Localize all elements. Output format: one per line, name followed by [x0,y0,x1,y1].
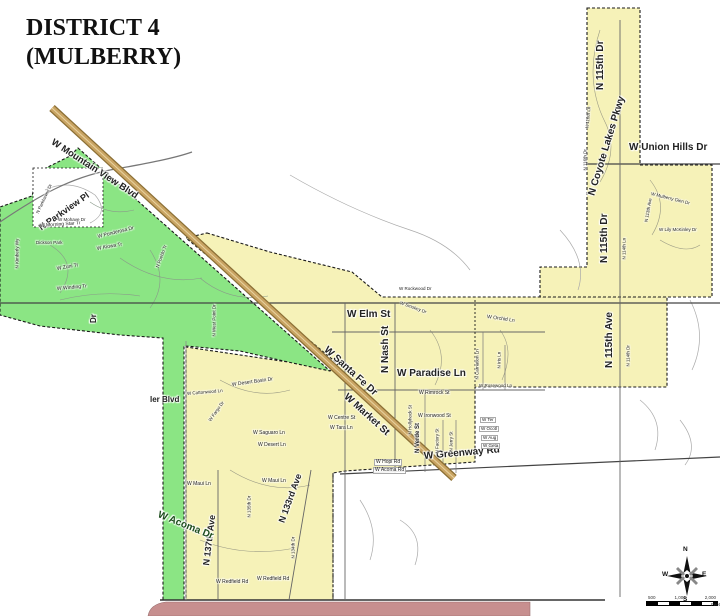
street-label: N 134th Dr [292,536,297,558]
adjacent-district-pink [148,602,530,616]
street-label: W Redfield Rd [257,577,289,582]
street-label: W Acoma Rd [373,467,406,474]
street-label: N Nash St [381,326,391,373]
street-label: W Elm St [347,310,390,320]
compass-w: W [662,571,668,578]
street-label: W Rosewood Ln [479,384,512,389]
street-label: N 114th Ln [623,237,628,259]
street-label: N Verde St [415,423,421,453]
street-label: N Hollyhock St [409,404,414,434]
compass-letters: N E S W [650,540,716,596]
map-canvas [0,0,720,616]
street-label: ler Blvd [150,396,179,404]
scale-unit: Feet [711,602,720,607]
street-label: N Carnation Ln [476,349,481,379]
street-label: W Ironwood St [418,414,451,419]
map-title-line1: DISTRICT 4 [26,14,181,43]
street-label: Dr [90,314,98,323]
scale-tick: 2,000 [705,595,716,600]
street-label: N 115th Dr [596,41,606,90]
street-label: N 116th Dr [584,149,589,170]
street-label: W Hopi Rd [374,459,402,466]
scale-tick: 500 [648,595,656,600]
street-label: W Geta [481,443,500,450]
map-title-line2: (MULBERRY) [26,43,181,72]
street-label: W Rockwood Dr [399,287,432,292]
street-label: N 135th Dr [248,495,253,517]
street-label: N 114th Dr [627,345,632,366]
street-label: W Union Hills Dr [629,143,707,153]
scale-bar-graphic [646,601,718,606]
scale-bar: 500 1,000 2,000 Feet [646,595,718,606]
street-label: W Maui Ln [187,482,211,487]
district-map: DISTRICT 4 (MULBERRY) W Mountain View Bl… [0,0,720,616]
map-title: DISTRICT 4 (MULBERRY) [26,14,181,72]
street-label: W Ter [480,417,496,424]
street-label: W Ocotl [479,426,499,433]
street-label: W Mohave Dr [58,218,86,223]
street-label: N Jerry St [450,431,455,451]
street-label: N 115th Dr [600,214,610,263]
scale-ticks: 500 1,000 2,000 [646,595,718,600]
street-label: N Factory St [436,428,441,453]
street-label: W Redfield Rd [216,580,248,585]
street-label: W Saguaro Ln [253,431,285,436]
street-label: W Tara Ln [330,426,353,431]
street-label: N West Point Dr [213,304,218,336]
street-label: W Rimrock St [419,391,450,396]
compass-e: E [702,571,706,578]
street-label: N 115th Ave [605,312,615,368]
scale-tick: 1,000 [674,595,685,600]
street-label: W Maui Ln [262,479,286,484]
street-label: N Iris Ln [498,351,503,368]
compass-n: N [683,546,688,553]
street-label: W Aug [481,435,498,442]
street-label: N Kimberly Wy [16,238,21,268]
street-label: W Desert Ln [258,443,286,448]
street-label: W Centre St [328,416,355,421]
street-label: W Paradise Ln [397,369,466,379]
street-label: W Lily McKinley Dr [659,228,697,233]
street-label: Dickson Park [36,241,63,246]
